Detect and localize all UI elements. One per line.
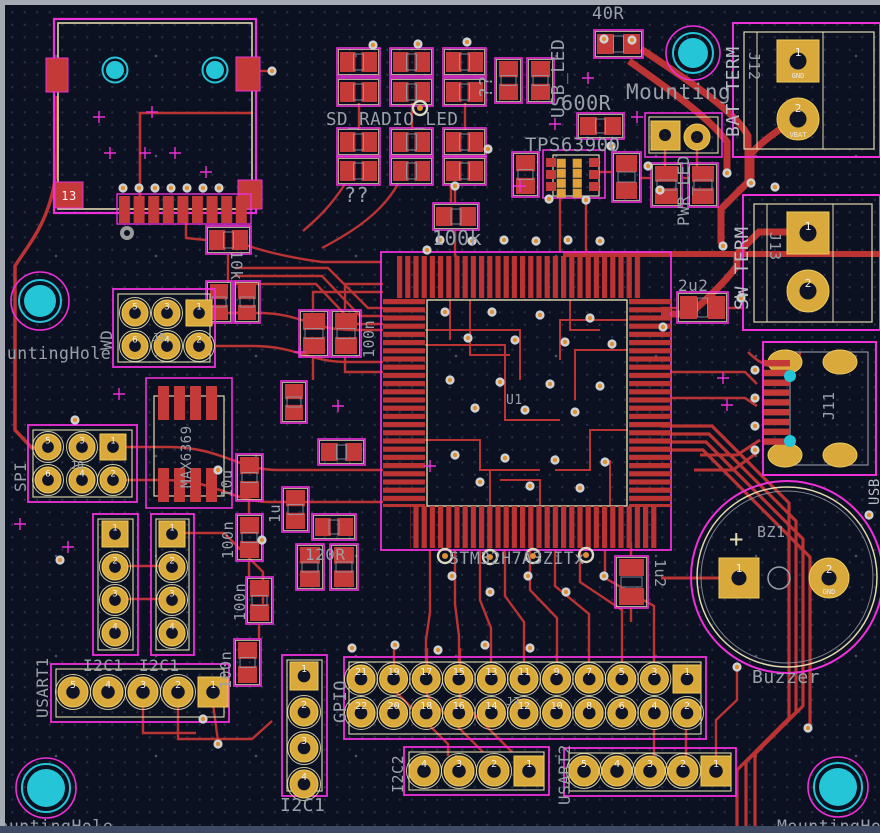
u1-pins-bottom[interactable]: [410, 506, 658, 548]
passive-component[interactable]: [236, 454, 263, 501]
j12-pad-name: GND: [792, 72, 805, 80]
trace[interactable]: [426, 550, 430, 663]
label-bat-term: BAT TERM: [723, 46, 744, 137]
pin-number: 14: [485, 701, 497, 712]
npth-hole-center: [124, 230, 130, 236]
passive-component[interactable]: [443, 48, 486, 76]
pin-number: 6: [45, 469, 50, 479]
pin-number: 4: [169, 622, 174, 632]
pin-number: 6: [132, 335, 137, 345]
via[interactable]: [535, 310, 544, 319]
via[interactable]: [433, 645, 442, 654]
j13-pin-number: 2: [805, 277, 812, 290]
trace[interactable]: [232, 240, 382, 262]
pin-number: 2: [112, 556, 117, 566]
via[interactable]: [198, 183, 207, 192]
via[interactable]: [658, 322, 667, 331]
tps-thermal-pad[interactable]: [557, 159, 566, 168]
usart2-header[interactable]: 54321: [564, 748, 736, 796]
pin-number: 20: [388, 701, 400, 712]
passive-component[interactable]: [495, 58, 522, 103]
label-u1-value: STM32H7A3ZITx: [449, 549, 585, 568]
module-silkscreen: [58, 23, 252, 209]
passive-component[interactable]: [299, 310, 329, 357]
pin-number: 3: [456, 759, 462, 770]
via[interactable]: [575, 483, 584, 492]
trace[interactable]: [143, 706, 196, 733]
label-max6369: MAX6369: [179, 425, 195, 488]
i2c1-header-b[interactable]: 1234: [151, 514, 194, 655]
label-c2u2: 2u2: [678, 276, 708, 295]
passive-component[interactable]: [612, 152, 641, 202]
trace[interactable]: [716, 668, 737, 756]
label-usb-note: USB: [867, 478, 880, 505]
pin-number: 2: [301, 700, 307, 711]
i2c1-header-c[interactable]: 1234: [282, 655, 327, 801]
tps-thermal-pad[interactable]: [557, 179, 566, 188]
passive-component[interactable]: [337, 157, 380, 185]
label-bz1: BZ1: [757, 523, 786, 541]
pin-number: 22: [355, 701, 367, 712]
label-sd-radio-led: SD_RADIO_LED: [326, 110, 458, 130]
pin-number: 17: [420, 667, 432, 678]
ratsnest-anchor: [14, 518, 26, 530]
via[interactable]: [70, 415, 79, 424]
via[interactable]: [550, 455, 559, 464]
via[interactable]: [495, 377, 504, 386]
pin-number: 3: [164, 302, 169, 312]
pin-number: 4: [421, 759, 427, 770]
module-hole: [106, 61, 124, 79]
connector-j13-sw[interactable]: [743, 195, 880, 330]
label-c1u: 1u: [266, 504, 284, 523]
passive-component[interactable]: [615, 556, 648, 608]
pin-number: 3: [301, 736, 307, 747]
via[interactable]: [440, 307, 449, 316]
module-pad[interactable]: [46, 58, 68, 92]
trace[interactable]: [313, 292, 383, 309]
label-r40: 40R: [592, 4, 624, 24]
via[interactable]: [722, 168, 731, 177]
passive-component[interactable]: [337, 128, 380, 156]
jumper-pin-number: 1: [662, 131, 669, 142]
pin-number: 1: [112, 523, 117, 533]
ratsnest-anchor: [582, 72, 594, 84]
mh-hole: [819, 768, 857, 806]
pcb-canvas: 5316425316421234123412345432143215432121…: [0, 0, 880, 833]
tps-thermal-pad[interactable]: [573, 169, 582, 178]
tps-thermal-pad[interactable]: [557, 169, 566, 178]
passive-component[interactable]: [234, 639, 261, 686]
via[interactable]: [450, 450, 459, 459]
via[interactable]: [643, 161, 652, 170]
pin-number: 10: [551, 701, 563, 712]
via[interactable]: [750, 393, 759, 402]
pin-number: 18: [420, 701, 432, 712]
ratsnest-anchor: [332, 400, 344, 412]
label-r120: 120R: [305, 545, 346, 564]
regulator-tps63900[interactable]: [543, 150, 605, 198]
j11-shield-pad[interactable]: [823, 350, 857, 374]
passive-component[interactable]: [246, 577, 273, 624]
pin-number: 3: [112, 589, 117, 599]
passive-component[interactable]: [390, 48, 433, 76]
label-usart2: USART2: [555, 744, 574, 805]
via[interactable]: [581, 195, 590, 204]
via[interactable]: [214, 183, 223, 192]
via[interactable]: [570, 407, 579, 416]
tps-pad[interactable]: [589, 182, 599, 191]
j11-shield-pad[interactable]: [823, 443, 857, 467]
pin-number: 1: [196, 302, 201, 312]
pin-number: 4: [105, 680, 111, 691]
via[interactable]: [213, 739, 222, 748]
trace[interactable]: [555, 430, 628, 470]
j11-alignment-hole: [784, 370, 796, 382]
mcu-u1[interactable]: [381, 252, 671, 550]
via[interactable]: [523, 571, 532, 580]
pin-number: 1: [526, 759, 532, 770]
via[interactable]: [545, 379, 554, 388]
tps-thermal-pad[interactable]: [573, 189, 582, 198]
label-i2c1: I2C1: [139, 656, 180, 675]
via[interactable]: [732, 662, 741, 671]
passive-component[interactable]: [443, 128, 486, 156]
passive-component[interactable]: [512, 152, 539, 197]
via[interactable]: [134, 183, 143, 192]
tps-pad[interactable]: [546, 158, 556, 167]
via[interactable]: [607, 339, 616, 348]
pin-number: 8: [586, 701, 592, 712]
j12-pad-name: VBAT: [790, 131, 808, 139]
trace[interactable]: [575, 350, 628, 400]
via[interactable]: [750, 365, 759, 374]
via[interactable]: [510, 335, 519, 344]
passive-component[interactable]: [390, 157, 433, 185]
passive-component[interactable]: [282, 487, 309, 532]
label-c1u2: 1u2: [651, 559, 669, 588]
via[interactable]: [531, 236, 540, 245]
via[interactable]: [413, 39, 422, 48]
mounting-hole-bottom-left[interactable]: [16, 758, 76, 818]
canvas-edge-top: [0, 0, 880, 5]
tps-pad[interactable]: [546, 170, 556, 179]
j12-pin-number: 1: [795, 46, 802, 59]
pin-number: 7: [586, 667, 592, 678]
j12-pin-number: 2: [795, 102, 802, 115]
label-j8: J8: [70, 459, 84, 472]
via[interactable]: [595, 381, 604, 390]
ratsnest-anchor: [146, 106, 158, 118]
via[interactable]: [150, 183, 159, 192]
pin-number: 5: [70, 680, 76, 691]
pin-number: 4: [112, 622, 117, 632]
pin-number: 19: [388, 667, 400, 678]
via[interactable]: [770, 182, 779, 191]
passive-component[interactable]: [281, 381, 307, 423]
u1-pins-left[interactable]: [383, 299, 425, 507]
via[interactable]: [595, 236, 604, 245]
via[interactable]: [422, 245, 431, 254]
mounting-hole-bottom-right[interactable]: [808, 757, 868, 817]
trace[interactable]: [303, 184, 345, 231]
via[interactable]: [475, 477, 484, 486]
via[interactable]: [599, 34, 608, 43]
pin-number: 15: [453, 667, 465, 678]
module-pad13-number: 13: [61, 189, 76, 203]
via[interactable]: [480, 640, 489, 649]
pin-number: 2: [680, 759, 686, 770]
tps-pad[interactable]: [589, 158, 599, 167]
mh-hole: [27, 769, 65, 807]
buzzer-pin-number: 2: [826, 563, 833, 576]
pin-number: 1: [713, 759, 719, 770]
passive-component[interactable]: [318, 439, 365, 465]
ratsnest-anchor: [169, 147, 181, 159]
via[interactable]: [347, 643, 356, 652]
pin-number: 2: [169, 556, 174, 566]
label-c100n: 100n: [219, 521, 237, 559]
via[interactable]: [499, 235, 508, 244]
ratsnest-anchor: [549, 118, 561, 130]
trace[interactable]: [425, 345, 560, 420]
buzzer-pad-name: GND: [823, 588, 836, 596]
label-i2c1: I2C1: [280, 795, 325, 816]
module-castellated-pads[interactable]: [119, 196, 249, 223]
ratsnest-anchor: [93, 111, 105, 123]
via[interactable]: [267, 66, 276, 75]
pin-number: 3: [140, 680, 146, 691]
via[interactable]: [544, 194, 553, 203]
pin-number: 5: [45, 436, 50, 446]
via[interactable]: [560, 337, 569, 346]
pin-number: 2: [175, 680, 181, 691]
mounting-hole-left[interactable]: [11, 272, 69, 330]
via[interactable]: [585, 313, 594, 322]
via[interactable]: [462, 37, 471, 46]
mounting-hole-top-right[interactable]: [666, 26, 720, 80]
connector-j12-bat[interactable]: [733, 23, 880, 157]
ratsnest-anchor: [721, 399, 733, 411]
pin-number: 2: [684, 701, 690, 712]
via[interactable]: [390, 640, 399, 649]
via[interactable]: [627, 35, 636, 44]
radio-module[interactable]: [46, 19, 262, 240]
via[interactable]: [470, 403, 479, 412]
pin-number: 1: [301, 664, 307, 675]
via[interactable]: [445, 375, 454, 384]
via[interactable]: [368, 40, 377, 49]
label-unknown-value: ??: [344, 183, 369, 207]
pin-number: 9: [554, 667, 560, 678]
label-j13: J13: [766, 232, 784, 261]
pin-number: 3: [169, 589, 174, 599]
pin-number: 3: [79, 436, 84, 446]
soic-pads-top[interactable]: [158, 386, 220, 420]
trace[interactable]: [672, 372, 757, 384]
ratsnest-anchor: [631, 111, 643, 123]
label-j7: J7: [506, 695, 520, 708]
label-i2c1: I2C1: [83, 656, 124, 675]
tps-pad[interactable]: [546, 182, 556, 191]
j11-alignment-hole: [784, 435, 796, 447]
pin-number: 3: [647, 759, 653, 770]
label-pwr-led: PWR_LED: [674, 155, 693, 226]
pin-number: 5: [132, 302, 137, 312]
tps-thermal-pad[interactable]: [573, 159, 582, 168]
canvas-edge-left: [0, 0, 5, 833]
ratsnest-anchor: [200, 166, 212, 178]
mh-hole: [678, 38, 708, 68]
module-pad[interactable]: [236, 57, 260, 91]
via[interactable]: [655, 185, 664, 194]
pin-number: 4: [301, 772, 307, 783]
passive-component[interactable]: [312, 514, 356, 540]
pin-number: 6: [619, 701, 625, 712]
label-i2c2: I2C2: [389, 755, 407, 793]
j13-pin-number: 1: [805, 220, 812, 233]
passive-component[interactable]: [443, 157, 486, 185]
label-r600: 600R: [561, 91, 612, 115]
tps-thermal-pad[interactable]: [573, 179, 582, 188]
via[interactable]: [746, 178, 755, 187]
label-c10u: 10u: [218, 469, 236, 498]
u1-pins-top[interactable]: [397, 256, 643, 298]
label-tps63900: TPS63900: [525, 134, 621, 156]
buzzer-sound-hole: [768, 567, 790, 589]
label-mounting-hole: MountingHole: [0, 344, 111, 363]
via[interactable]: [55, 555, 64, 564]
via[interactable]: [600, 457, 609, 466]
passive-component[interactable]: [390, 78, 433, 106]
passive-component[interactable]: [331, 310, 361, 357]
via[interactable]: [198, 714, 207, 723]
pin-number: 1: [169, 523, 174, 533]
via[interactable]: [166, 183, 175, 192]
label-unknown-value: ??: [476, 75, 497, 98]
pin-number: 16: [453, 701, 465, 712]
pin-number: 2: [491, 759, 497, 770]
label-c100n: 100n: [217, 651, 235, 689]
label-j11: J11: [820, 391, 838, 420]
passive-component[interactable]: [677, 292, 728, 323]
pin-number: 11: [518, 667, 530, 678]
module-hole: [206, 61, 224, 79]
label-r100k: 100k: [432, 226, 482, 250]
label-c100n: 100n: [360, 320, 378, 358]
via[interactable]: [447, 571, 456, 580]
via[interactable]: [257, 535, 266, 544]
via[interactable]: [483, 144, 492, 153]
via[interactable]: [864, 510, 873, 519]
ratsnest-anchor: [424, 460, 436, 472]
via[interactable]: [525, 643, 534, 652]
passive-component[interactable]: [337, 48, 380, 76]
label-u1-ref: U1: [506, 393, 523, 408]
i2c2-header[interactable]: 4321: [404, 747, 549, 795]
pin-number: 1: [110, 436, 115, 446]
label-sw-term: SW TERM: [731, 226, 753, 310]
mh-hole: [24, 285, 56, 317]
via[interactable]: [487, 307, 496, 316]
buzzer-plus-mark: +: [729, 525, 744, 553]
via[interactable]: [118, 183, 127, 192]
ratsnest-anchor: [62, 541, 74, 553]
pin-number: 3: [651, 667, 657, 678]
via[interactable]: [485, 587, 494, 596]
passive-component[interactable]: [337, 78, 380, 106]
via[interactable]: [500, 453, 509, 462]
passive-component[interactable]: [234, 281, 260, 323]
pin-number: 2: [110, 469, 115, 479]
trace[interactable]: [570, 300, 600, 330]
label-j12: J12: [745, 52, 763, 81]
pin-number: 5: [619, 667, 625, 678]
via[interactable]: [561, 587, 570, 596]
via[interactable]: [525, 481, 534, 490]
buzzer-pin-number: 1: [736, 562, 743, 575]
pin-number: 13: [485, 667, 497, 678]
via[interactable]: [750, 445, 759, 454]
via[interactable]: [599, 571, 608, 580]
via[interactable]: [182, 183, 191, 192]
wd-header[interactable]: 531642: [113, 289, 215, 367]
label-r10k: 10k: [227, 250, 246, 280]
ratsnest-anchor: [104, 147, 116, 159]
via[interactable]: [750, 421, 759, 430]
trace[interactable]: [235, 268, 383, 308]
via[interactable]: [803, 723, 812, 732]
via[interactable]: [450, 181, 459, 190]
pin-number: 21: [355, 667, 367, 678]
label-usart1: USART1: [33, 657, 52, 718]
label-gpio: GPIO: [331, 680, 351, 723]
pin-number: 4: [614, 759, 620, 770]
pin-number: 2: [196, 335, 201, 345]
via[interactable]: [563, 235, 572, 244]
ratsnest-anchor: [717, 372, 729, 384]
label-spi: SPI: [11, 462, 30, 492]
ratsnest-anchor: [113, 388, 125, 400]
tps-pad[interactable]: [589, 170, 599, 179]
gpio-header[interactable]: 21221920171815161314111291078563412: [344, 657, 706, 739]
label-j5: J5: [152, 331, 166, 344]
pin-number: 4: [651, 701, 657, 712]
via[interactable]: [718, 241, 727, 250]
jumper-pin-number: 2: [694, 133, 701, 144]
passive-component[interactable]: [390, 128, 433, 156]
label-mounting-top: Mounting: [626, 80, 731, 104]
canvas-edge-bottom: [0, 826, 880, 833]
pin-number: 5: [581, 759, 587, 770]
pin-number: 1: [210, 680, 216, 691]
tps-thermal-pad[interactable]: [557, 189, 566, 198]
i2c1-header-a[interactable]: 1234: [93, 514, 138, 655]
via[interactable]: [463, 333, 472, 342]
label-c100n: 100n: [231, 583, 249, 621]
pin-number: 1: [684, 667, 690, 678]
trace[interactable]: [672, 398, 757, 406]
passive-component[interactable]: [594, 30, 643, 58]
trace[interactable]: [425, 440, 540, 470]
trace[interactable]: [345, 357, 383, 372]
label-buzzer: Buzzer: [752, 667, 820, 688]
